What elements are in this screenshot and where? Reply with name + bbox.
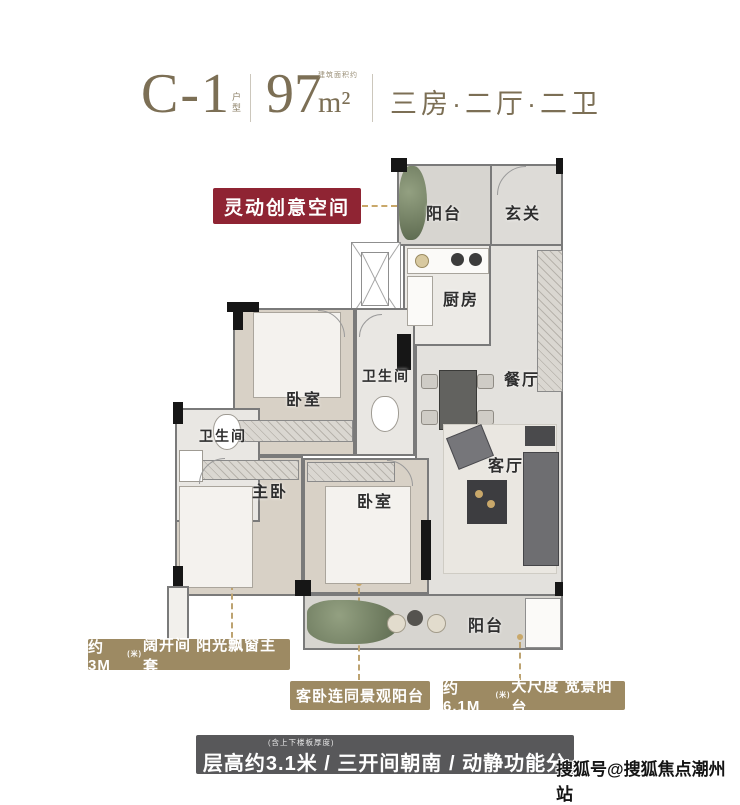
stove-burner-icon xyxy=(451,253,464,266)
table-decor-icon xyxy=(487,500,495,508)
label-balcony-bottom: 阳台 xyxy=(453,612,519,636)
feature-label-master-suite: 约3M(米)阔开间 阳光飘窗主套 xyxy=(88,639,290,670)
banner-text: 层高约3.1米 / 三开间朝南 / 动静功能分区 xyxy=(196,747,574,805)
area-unit: m² xyxy=(318,88,350,118)
column xyxy=(173,566,183,586)
balcony-table-icon xyxy=(407,610,423,626)
label-bedroom-top: 卧室 xyxy=(269,386,339,410)
elevator-x-icon xyxy=(361,252,389,306)
utility-box xyxy=(525,598,561,648)
tv-cabinet-icon xyxy=(525,426,555,446)
column xyxy=(227,302,259,312)
label-foyer: 玄关 xyxy=(487,200,559,224)
column xyxy=(556,158,563,174)
feature-wide-sub: (米) xyxy=(496,692,511,699)
label-bedroom-mid: 卧室 xyxy=(339,488,411,512)
header-divider xyxy=(372,74,373,122)
column xyxy=(391,158,407,172)
bottom-banner: (含上下楼板厚度) 层高约3.1米 / 三开间朝南 / 动静功能分区 xyxy=(196,735,574,774)
balcony-chair-icon xyxy=(387,614,406,633)
label-balcony-top: 阳台 xyxy=(411,200,477,224)
header-divider xyxy=(250,74,251,122)
leader-line-master xyxy=(231,584,233,638)
feature-label-guest-balcony: 客卧连同景观阳台 xyxy=(290,681,430,710)
toilet-icon xyxy=(371,396,399,432)
column xyxy=(421,520,431,580)
kitchen-sink-icon xyxy=(415,254,429,268)
column xyxy=(397,334,411,370)
label-bath-left: 卫生间 xyxy=(185,426,261,446)
feature-master-text: 阔开间 阳光飘窗主套 xyxy=(143,634,290,676)
plants-icon xyxy=(307,600,399,644)
feature-master-sub: (米) xyxy=(127,651,142,658)
feature-wide-text: 大尺度 宽景阳台 xyxy=(511,675,625,717)
wardrobe-mid-bedroom xyxy=(307,462,395,482)
stove-burner-icon xyxy=(469,253,482,266)
table-decor-icon xyxy=(475,490,483,498)
feature-wide-prefix: 约6.1M xyxy=(443,677,495,715)
column xyxy=(555,582,563,596)
dining-chair-icon xyxy=(477,410,494,425)
dining-chair-icon xyxy=(421,410,438,425)
label-master-bedroom: 主卧 xyxy=(235,478,305,502)
dining-table xyxy=(439,370,477,430)
label-bath-mid: 卫生间 xyxy=(349,366,423,386)
feature-master-prefix: 约3M xyxy=(88,636,126,674)
unit-tag-label: 户型 xyxy=(231,92,240,114)
unit-code: C-1 xyxy=(141,66,231,122)
column xyxy=(173,402,183,424)
column xyxy=(295,580,311,596)
label-living: 客厅 xyxy=(473,452,539,476)
area-note: 建筑面积约 xyxy=(318,70,358,80)
label-kitchen: 厨房 xyxy=(425,286,497,310)
dining-chair-icon xyxy=(421,374,438,389)
feature-label-wide-balcony: 约6.1M(米)大尺度 宽景阳台 xyxy=(443,681,625,710)
watermark: 搜狐号@搜狐焦点潮州站 xyxy=(556,755,740,805)
label-dining: 餐厅 xyxy=(489,366,555,390)
balcony-chair-icon xyxy=(427,614,446,633)
layout-summary: 三房·二厅·二卫 xyxy=(390,82,602,121)
floor-plan: 阳台 玄关 厨房 餐厅 卧室 卫生间 卫生间 主卧 卧室 客厅 阳台 xyxy=(175,158,567,658)
feature-guest-balcony-text: 客卧连同景观阳台 xyxy=(296,685,424,706)
column xyxy=(233,308,243,330)
area-number: 97 xyxy=(266,66,322,122)
